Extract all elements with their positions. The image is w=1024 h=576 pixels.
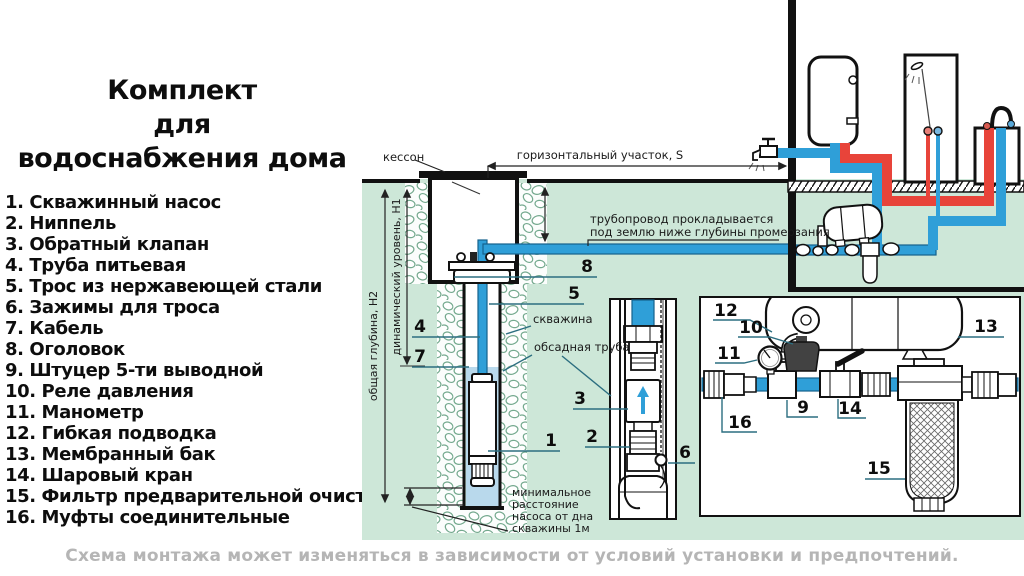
callout-14-number: 14 [838, 399, 862, 419]
check-valve-detail [626, 380, 660, 422]
rope-clamp [656, 455, 667, 466]
callout-1-number: 1 [545, 431, 557, 451]
callout-15-number: 15 [867, 459, 891, 479]
min-distance-line4: скважины 1м [512, 522, 590, 535]
shower-cabin [905, 55, 957, 182]
callout-5-number: 5 [568, 284, 580, 304]
nipple-detail [630, 431, 656, 454]
well-label: скважина [533, 312, 593, 326]
water-heater [809, 57, 858, 145]
callout-3-number: 3 [574, 389, 586, 409]
callout-12-number: 12 [714, 301, 738, 321]
total-depth-label: общая глубина, Н2 [367, 291, 380, 401]
callout-4-number: 4 [414, 317, 426, 337]
callout-13-number: 13 [974, 317, 998, 337]
pipeline-note-line1: трубопровод прокладывается [590, 212, 773, 226]
horizontal-section-label: горизонтальный участок, S [517, 148, 683, 162]
callout-10-number: 10 [739, 318, 763, 338]
pre-filter [898, 359, 962, 511]
callout-6-number: 6 [679, 443, 691, 463]
union-coupling [862, 373, 890, 396]
callout-2-number: 2 [586, 427, 598, 447]
callout-8-number: 8 [581, 257, 593, 277]
callout-11-number: 11 [717, 344, 741, 364]
callout-16-number: 16 [728, 413, 752, 433]
pipeline-note-line2: под землю ниже глубины промерзания [590, 225, 830, 239]
screenshot-root: Комплект для водоснабжения дома 1. Скваж… [0, 0, 1024, 576]
installation-diagram: кессон горизонтальный участок, S трубопр… [0, 0, 1024, 576]
callout-7-number: 7 [414, 347, 426, 367]
submersible-pump [469, 374, 496, 486]
casing-pipe-label: обсадная труба [534, 340, 630, 354]
caisson-label: кессон [383, 150, 424, 164]
dynamic-level-label: динамический уровень, Н1 [390, 198, 403, 355]
sink-faucet [984, 108, 1015, 130]
callout-14: 14 [838, 399, 866, 419]
callout-9-number: 9 [797, 398, 809, 418]
